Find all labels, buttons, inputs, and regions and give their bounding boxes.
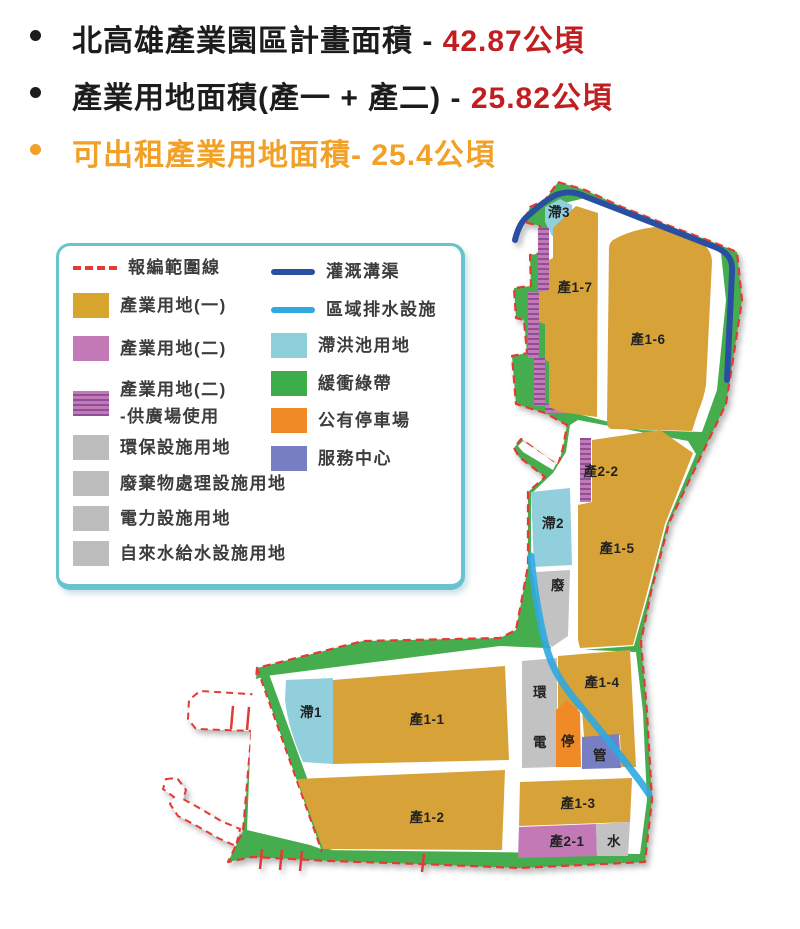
purple-swatch bbox=[271, 446, 307, 471]
legend-item-water-facility: 自來水給水設施用地 bbox=[73, 540, 287, 567]
parcel-industrial-1-2 bbox=[297, 770, 505, 850]
legend-item-power-facility: 電力設施用地 bbox=[73, 505, 231, 532]
legend-label: 廢棄物處理設施用地 bbox=[120, 470, 287, 497]
green-swatch bbox=[271, 371, 307, 396]
legend-item-industrial-2: 產業用地(二) bbox=[73, 335, 227, 362]
parcel-industrial-1-5 bbox=[578, 430, 693, 648]
legend-item-drainage: 區域排水設施 bbox=[271, 296, 437, 323]
legend-item-green-buffer: 緩衝綠帶 bbox=[271, 370, 392, 397]
legend-label: 區域排水設施 bbox=[326, 296, 437, 323]
legend-label: 自來水給水設施用地 bbox=[120, 540, 287, 567]
gray-swatch bbox=[73, 541, 109, 566]
gold-swatch bbox=[73, 293, 109, 318]
parcel-industrial-1-6 bbox=[607, 227, 712, 431]
legend-item-env-facility: 環保設施用地 bbox=[73, 434, 231, 461]
label-detention-3: 滯3 bbox=[548, 204, 570, 220]
legend-label: 滯洪池用地 bbox=[318, 332, 411, 359]
gray-swatch bbox=[73, 506, 109, 531]
red-dashed-line-swatch bbox=[73, 266, 117, 270]
navy-line-swatch bbox=[271, 269, 315, 275]
label-parking: 停 bbox=[561, 733, 575, 749]
corridor-southwest bbox=[163, 778, 240, 846]
label-industrial-1-5: 產1-5 bbox=[598, 540, 634, 556]
legend-item-industrial-1: 產業用地(一) bbox=[73, 292, 227, 319]
map-legend: 報編範圍線 產業用地(一) 產業用地(二) 產業用地(二) -供廣場使用 環保設… bbox=[56, 243, 465, 590]
gray-swatch bbox=[73, 435, 109, 460]
striped-pink-swatch bbox=[73, 391, 109, 416]
legend-item-waste-facility: 廢棄物處理設施用地 bbox=[73, 470, 287, 497]
slide-page: { "bullets": [ {"prefix": "北高雄產業園區計畫面積 -… bbox=[0, 0, 800, 929]
pink-swatch bbox=[73, 336, 109, 361]
legend-item-boundary: 報編範圍線 bbox=[73, 254, 221, 281]
label-industrial-2-2: 產2-2 bbox=[582, 463, 618, 479]
label-water: 水 bbox=[607, 833, 621, 849]
orange-swatch bbox=[271, 408, 307, 433]
legend-item-industrial-2-plaza: 產業用地(二) -供廣場使用 bbox=[73, 376, 227, 430]
legend-label: 產業用地(二) -供廣場使用 bbox=[120, 376, 227, 430]
legend-label: 報編範圍線 bbox=[128, 254, 221, 281]
legend-label-line1: 產業用地(二) bbox=[120, 376, 227, 403]
legend-label: 產業用地(一) bbox=[120, 292, 227, 319]
legend-label: 環保設施用地 bbox=[120, 434, 231, 461]
label-industrial-1-4: 產1-4 bbox=[583, 674, 619, 690]
legend-label: 產業用地(二) bbox=[120, 335, 227, 362]
label-industrial-1-3: 產1-3 bbox=[559, 795, 595, 811]
legend-label: 緩衝綠帶 bbox=[318, 370, 392, 397]
label-waste: 廢 bbox=[551, 577, 565, 593]
label-service: 管 bbox=[593, 747, 607, 763]
legend-label: 灌溉溝渠 bbox=[326, 258, 400, 285]
label-industrial-1-1: 產1-1 bbox=[408, 711, 444, 727]
legend-item-irrigation: 灌溉溝渠 bbox=[271, 258, 400, 285]
legend-label: 公有停車場 bbox=[318, 407, 411, 434]
label-power: 電 bbox=[533, 734, 547, 750]
label-industrial-2-1: 產2-1 bbox=[548, 833, 584, 849]
label-env: 環 bbox=[533, 685, 547, 700]
parcel-env-power bbox=[522, 658, 557, 768]
blue-line-swatch bbox=[271, 307, 315, 313]
legend-label: 服務中心 bbox=[318, 445, 392, 472]
legend-label-line2: -供廣場使用 bbox=[120, 403, 227, 430]
cyan-swatch bbox=[271, 333, 307, 358]
legend-label: 電力設施用地 bbox=[120, 505, 231, 532]
label-industrial-1-7: 產1-7 bbox=[556, 279, 592, 295]
legend-item-public-parking: 公有停車場 bbox=[271, 407, 411, 434]
gray-swatch bbox=[73, 471, 109, 496]
label-detention-1: 滯1 bbox=[300, 704, 322, 720]
label-detention-2: 滯2 bbox=[542, 515, 564, 531]
plaza-strip-1 bbox=[538, 228, 549, 292]
legend-item-detention: 滯洪池用地 bbox=[271, 332, 411, 359]
legend-item-service-center: 服務中心 bbox=[271, 445, 392, 472]
plaza-strip-2 bbox=[528, 292, 539, 358]
label-industrial-1-6: 產1-6 bbox=[629, 331, 665, 347]
plaza-strip-3 bbox=[534, 358, 545, 406]
label-industrial-1-2: 產1-2 bbox=[408, 809, 444, 825]
